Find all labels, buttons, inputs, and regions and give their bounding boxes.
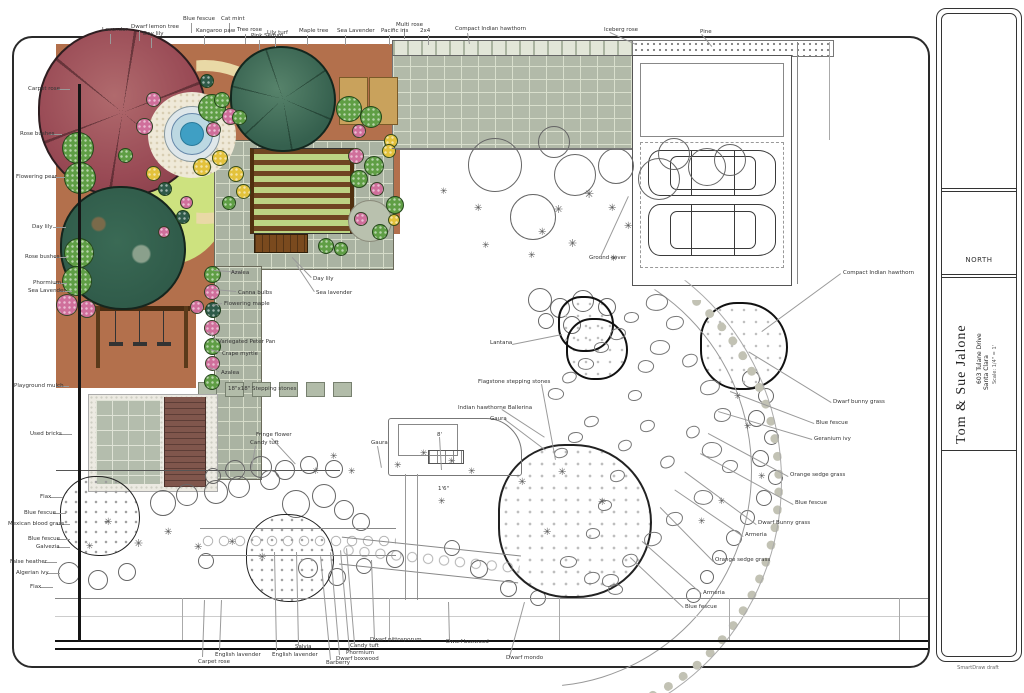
plant-label: Rose bushes: [25, 254, 60, 260]
plant-label: Galvezia: [36, 544, 60, 550]
line: [182, 598, 183, 640]
line: [139, 311, 140, 342]
leader-line: [151, 38, 152, 48]
shrub: [364, 156, 384, 176]
shrub-outline: [538, 126, 570, 158]
shrub: [318, 238, 334, 254]
plant-label: Lily turf: [267, 30, 288, 36]
shrub-outline: [205, 468, 221, 484]
shrub: [206, 122, 221, 137]
plant-label: English lavender: [272, 652, 318, 658]
grass-symbol: ✳: [608, 204, 618, 214]
grass-symbol: ✳: [86, 543, 95, 552]
brick-path: [164, 397, 206, 487]
shrub: [180, 196, 193, 209]
plant-label: Dwarf lemon tree: [131, 24, 179, 30]
plant-label: Pine: [700, 29, 712, 35]
shrub-outline: [88, 570, 108, 590]
shrub: [236, 184, 251, 199]
leader-line: [307, 35, 308, 45]
line: [729, 598, 730, 640]
plant-label: Azalea: [231, 270, 249, 276]
shrub: [136, 118, 153, 135]
shrub: [193, 158, 211, 176]
plant-label: Playground mulch: [14, 383, 64, 389]
swing-seat: [109, 342, 123, 346]
shrub: [350, 170, 368, 188]
plant-label: Day lily: [32, 224, 52, 230]
leader-line: [204, 35, 205, 45]
shrub: [352, 124, 366, 138]
leader-line: [110, 34, 111, 44]
plant-label: 1'6": [438, 486, 449, 492]
grass-symbol: ✳: [543, 528, 553, 538]
grass-symbol: ✳: [744, 423, 753, 432]
leader-line: [139, 31, 140, 41]
plant-label: 18"x18" Stepping stones: [228, 386, 296, 392]
leader-line: [345, 35, 346, 45]
shrub-outline: [150, 490, 176, 516]
plant-label: Blue fescue: [28, 536, 60, 542]
grass-symbol: ✳: [312, 468, 321, 477]
grass-symbol: ✳: [568, 238, 579, 249]
grass-symbol: ✳: [518, 478, 528, 488]
line: [389, 598, 390, 640]
plant-label: Phormium: [33, 280, 61, 286]
shrub-outline: [538, 313, 554, 329]
plant-label: Gaura: [490, 416, 507, 422]
grass-symbol: ✳: [584, 188, 596, 200]
grass-symbol: ✳: [758, 473, 767, 482]
leader-line: [191, 23, 192, 33]
property-line: [78, 84, 81, 642]
plant-label: Compact Indian hawthorn: [455, 26, 526, 32]
title-block-inner-border: NORTH Tom & Sue Jalone 603 Tulane Drive …: [941, 13, 1017, 657]
grass-symbol: ✳: [538, 228, 548, 238]
plant-label: Rose bushes: [20, 131, 55, 137]
shrub-outline: [658, 138, 690, 170]
plant-label: Fringe flower: [256, 432, 292, 438]
plant-label: Flagstone stepping stones: [478, 379, 550, 385]
plant-label: Lantana: [490, 340, 512, 346]
plant-label: Blue fescue: [795, 500, 827, 506]
leader-line: [40, 587, 53, 588]
grass-symbol: ✳: [698, 518, 707, 527]
grass-symbol: ✳: [474, 204, 484, 214]
flagstone-patio: [96, 400, 160, 484]
play-structure-post: [184, 306, 188, 368]
plant-label: Pacific iris: [381, 28, 408, 34]
plant-label: Blue fescue: [816, 420, 848, 426]
plant-label: Orange sedge grass: [790, 472, 845, 478]
plant-label: Dwarf pittosporum: [370, 637, 422, 643]
shrub: [232, 110, 247, 125]
shrub: [214, 92, 230, 108]
maple-tree-canopy: [230, 46, 336, 152]
plant-label: Sea lavender: [316, 290, 352, 296]
shrub: [222, 196, 236, 210]
plant-label: Geranium ivy: [814, 436, 851, 442]
grass-symbol: ✳: [482, 242, 491, 251]
pergola: [250, 148, 354, 234]
grass-symbol: ✳: [440, 188, 449, 197]
shrub: [386, 196, 404, 214]
shrub-outline: [118, 563, 136, 581]
plant-label: Mexican blood grass: [8, 521, 64, 527]
line: [55, 598, 928, 599]
plant-label: Blue fescue: [685, 604, 717, 610]
shrub: [372, 224, 388, 240]
shrub: [204, 266, 221, 283]
plant-label: Azalea: [221, 370, 239, 376]
plant-label: Flax: [30, 584, 41, 590]
plant-label: Day lily: [313, 276, 333, 282]
panel-divider: [942, 450, 1016, 451]
grass-symbol: ✳: [164, 528, 174, 538]
leader-line: [245, 34, 246, 44]
shrub: [204, 320, 220, 336]
parking-pad: [640, 63, 784, 137]
tree-canopy-outline: [60, 476, 140, 556]
client-address-line2: Santa Clara: [983, 60, 990, 390]
landscape-plan-sheet: ✳✳✳✳✳✳✳✳✳✳✳✳✳✳✳✳✳✳✳✳✳✳✳✳✳✳✳✳✳✳✳✳✳✳✳Laven…: [0, 0, 1024, 693]
shrub-outline: [176, 484, 198, 506]
scale-note: Scale: 1/4" = 1': [992, 134, 998, 384]
leader-line: [47, 573, 60, 574]
shrub: [118, 148, 133, 163]
shrub: [348, 148, 364, 164]
shrub: [370, 182, 384, 196]
grass-symbol: ✳: [624, 222, 634, 232]
plant-label: Carpet rose: [28, 86, 60, 92]
line: [56, 470, 340, 471]
shrub: [388, 214, 400, 226]
plant-label: Armeria: [703, 590, 725, 596]
plant-label: Dwarf mondo: [506, 655, 543, 661]
plant-label: Flowering maple: [224, 301, 270, 307]
grass-symbol: ✳: [104, 518, 114, 528]
plant-label: Dwarf boxwood: [446, 639, 489, 645]
fountain-water: [180, 122, 204, 146]
swing-seat: [133, 342, 147, 346]
plant-label: Crape myrtle: [222, 351, 258, 357]
leader-line: [389, 35, 390, 45]
plant-label: Dwarf Bunny grass: [758, 520, 810, 526]
shrub: [146, 92, 161, 107]
plant-label: Iceberg rose: [604, 27, 638, 33]
plant-label: Indian hawthorne Ballerina: [458, 405, 532, 411]
mulch-area: [56, 300, 196, 388]
line: [115, 311, 116, 342]
leader-line: [428, 35, 429, 45]
leader-line: [259, 40, 260, 50]
shrub-outline: [325, 460, 343, 478]
plant-label: Canna bulbs: [238, 290, 272, 296]
plant-label: False heather: [10, 559, 47, 565]
title-block-panel: NORTH Tom & Sue Jalone 603 Tulane Drive …: [936, 8, 1022, 662]
shrub: [200, 74, 214, 88]
line: [899, 598, 900, 640]
line: [417, 474, 418, 600]
line: [405, 474, 406, 600]
stepping-stone: [333, 382, 352, 397]
shrub-outline: [334, 500, 354, 520]
shrub: [190, 300, 204, 314]
plant-label: Variegated Peter Pan: [218, 339, 276, 345]
shrub-outline: [528, 288, 552, 312]
plant-label: Ground cover: [589, 255, 626, 261]
plant-label: Flowering pear: [16, 174, 57, 180]
shrub: [146, 166, 161, 181]
shrub-outline: [714, 144, 746, 176]
shrub-outline: [58, 562, 80, 584]
line: [559, 598, 560, 640]
bench: [254, 234, 308, 253]
line: [829, 42, 830, 140]
plant-label: Multi rose: [396, 22, 423, 28]
plant-label: Phormium: [346, 650, 374, 656]
plant-label: Maple tree: [299, 28, 328, 34]
plant-label: Gaura: [371, 440, 388, 446]
grass-symbol: ✳: [348, 468, 357, 477]
plant-label: Dwarf bunny grass: [833, 399, 885, 405]
shrub-outline: [468, 138, 522, 192]
leader-line: [53, 227, 66, 228]
plant-label: English lavender: [215, 652, 261, 658]
plant-label: Kangaroo paw: [196, 28, 235, 34]
shrub: [354, 212, 368, 226]
plant-label: Candy tuft: [250, 440, 279, 446]
leader-line: [50, 497, 63, 498]
shrub: [382, 144, 396, 158]
street-edge: [55, 640, 928, 650]
plant-label: Compact Indian hawthorn: [843, 270, 914, 276]
shrub-outline: [225, 460, 245, 480]
plant-label: Day lily: [143, 31, 163, 37]
stepping-stone: [306, 382, 325, 397]
plant-label: Blue fescue: [183, 16, 215, 22]
shrub: [334, 242, 348, 256]
client-name: Tom & Sue Jalone: [954, 44, 970, 444]
shrub: [204, 374, 220, 390]
plant-label: Lavender: [102, 27, 128, 33]
shrub-outline: [312, 484, 336, 508]
swing-seat: [157, 342, 171, 346]
sheet-footer-caption: SmartDraw draft: [938, 665, 1018, 671]
plant-label: Sea Lavender: [28, 288, 66, 294]
play-structure-post: [96, 306, 100, 368]
shrub-outline: [275, 460, 295, 480]
plant-label: Algerian ivy: [16, 570, 49, 576]
shrub: [158, 226, 170, 238]
plant-label: Used bricks: [30, 431, 62, 437]
car-outline: [648, 204, 776, 256]
plant-label: Flax: [40, 494, 51, 500]
plant-label: Armeria: [745, 532, 767, 538]
shrub: [158, 182, 172, 196]
grass-symbol: ✳: [528, 252, 537, 261]
grass-symbol: ✳: [558, 468, 568, 478]
plant-label: Salvia: [295, 644, 312, 650]
plant-label: Orange sedge grass: [715, 557, 770, 563]
shrub: [228, 166, 244, 182]
plant-label: Candy tuft: [350, 643, 379, 649]
shrub-outline: [510, 194, 556, 240]
line: [392, 148, 632, 149]
plant-label: Dwarf boxwood: [336, 656, 379, 662]
grass-symbol: ✳: [554, 204, 565, 215]
shrub: [336, 96, 362, 122]
shrub-outline: [598, 148, 634, 184]
plant-label: Cat mint: [221, 16, 245, 22]
shrub: [212, 150, 228, 166]
grass-symbol: ✳: [438, 498, 447, 507]
grass-symbol: ✳: [134, 538, 145, 549]
shrub: [204, 284, 220, 300]
shrub: [56, 294, 78, 316]
client-address-line1: 603 Tulane Drive: [976, 54, 983, 384]
plant-label: Blue fescue: [24, 510, 56, 516]
line: [797, 42, 798, 284]
grass-symbol: ✳: [598, 498, 608, 508]
shrub: [176, 210, 190, 224]
plant-label: 8': [437, 432, 442, 438]
bench-outline: [428, 450, 464, 464]
line: [55, 616, 928, 617]
plant-label: Carpet rose: [198, 659, 230, 665]
shrub-outline: [204, 480, 228, 504]
paver-driveway: [392, 52, 634, 150]
line: [163, 311, 164, 342]
grass-symbol: ✳: [330, 453, 339, 462]
plant-label: Sea Lavender: [337, 28, 375, 34]
plant-label: 2x4: [420, 28, 430, 34]
